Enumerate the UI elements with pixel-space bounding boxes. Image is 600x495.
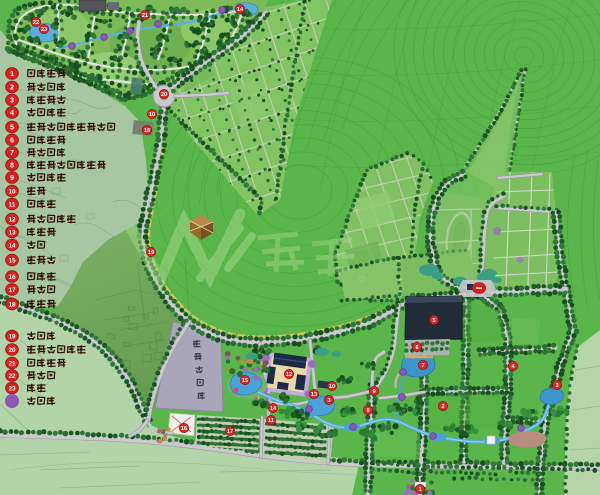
svg-text:1: 1 — [10, 69, 14, 78]
svg-text:8: 8 — [366, 408, 369, 414]
svg-text:14: 14 — [8, 242, 16, 249]
svg-text:1: 1 — [418, 487, 421, 493]
svg-text:8: 8 — [10, 160, 14, 169]
svg-text:13: 13 — [8, 229, 16, 236]
svg-text:16: 16 — [181, 426, 187, 432]
svg-text:15: 15 — [8, 257, 16, 264]
svg-text:3: 3 — [10, 95, 14, 104]
svg-text:10: 10 — [329, 384, 335, 390]
svg-text:3: 3 — [327, 398, 330, 404]
svg-text:20: 20 — [161, 92, 167, 98]
svg-text:12: 12 — [286, 372, 292, 378]
svg-text:23: 23 — [41, 27, 47, 33]
svg-text:16: 16 — [8, 274, 16, 281]
svg-text:18: 18 — [8, 301, 16, 308]
svg-text:22: 22 — [8, 373, 16, 380]
svg-text:21: 21 — [142, 13, 148, 19]
svg-text:9: 9 — [372, 389, 375, 395]
svg-text:10: 10 — [149, 112, 155, 118]
svg-text:14: 14 — [237, 7, 244, 13]
svg-text:18: 18 — [144, 128, 150, 134]
svg-text:5: 5 — [432, 318, 435, 324]
svg-text:9: 9 — [10, 173, 14, 182]
svg-text:4: 4 — [10, 108, 14, 117]
svg-text:17: 17 — [8, 287, 16, 294]
svg-text:13: 13 — [311, 392, 317, 398]
svg-text:20: 20 — [8, 347, 16, 354]
svg-text:10: 10 — [8, 188, 16, 195]
svg-text:7: 7 — [10, 148, 14, 157]
svg-text:6: 6 — [415, 345, 418, 351]
svg-text:14: 14 — [270, 406, 277, 412]
svg-text:19: 19 — [8, 333, 16, 340]
svg-text:5: 5 — [10, 122, 14, 131]
svg-text:12: 12 — [8, 216, 16, 223]
svg-text:17: 17 — [227, 429, 233, 435]
svg-text:15: 15 — [242, 378, 248, 384]
svg-text:3: 3 — [555, 383, 558, 389]
svg-text:7: 7 — [421, 363, 424, 369]
svg-text:2: 2 — [441, 404, 444, 410]
svg-text:11: 11 — [268, 418, 274, 424]
svg-text:6: 6 — [10, 135, 14, 144]
svg-text:11: 11 — [9, 201, 16, 208]
svg-text:22: 22 — [33, 20, 39, 26]
svg-text:19: 19 — [148, 250, 154, 256]
svg-text:23: 23 — [8, 385, 16, 392]
svg-text:21: 21 — [8, 360, 16, 367]
svg-text:2: 2 — [10, 82, 14, 91]
